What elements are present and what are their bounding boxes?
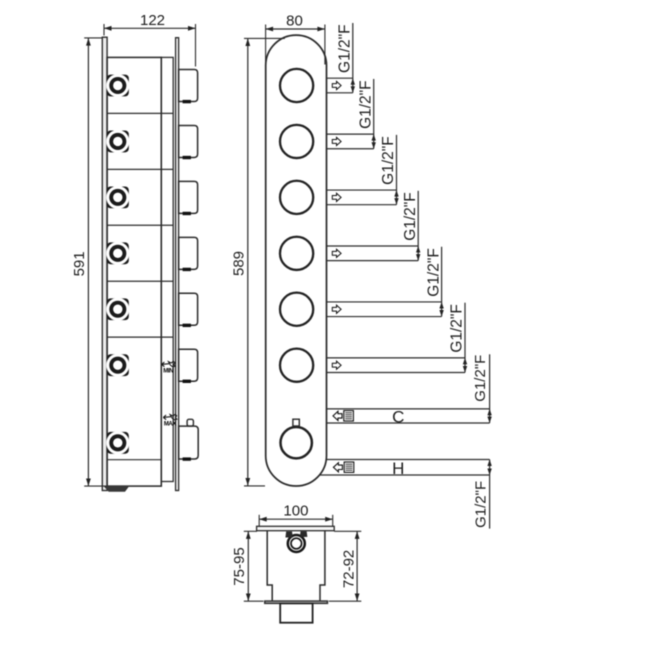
svg-text:G1/2"F: G1/2"F: [402, 192, 419, 241]
svg-text:C: C: [392, 407, 404, 426]
svg-text:122: 122: [140, 12, 165, 29]
svg-text:100: 100: [283, 502, 308, 519]
svg-text:MIN: MIN: [163, 368, 173, 374]
svg-text:MAX: MAX: [164, 421, 177, 427]
svg-text:H: H: [392, 459, 404, 478]
svg-text:80: 80: [286, 13, 303, 30]
svg-text:G1/2"F: G1/2"F: [472, 355, 489, 402]
svg-text:G1/2"F: G1/2"F: [357, 80, 374, 129]
svg-text:591: 591: [71, 251, 88, 276]
svg-text:G1/2"F: G1/2"F: [337, 24, 354, 73]
svg-text:75-95: 75-95: [231, 547, 248, 585]
svg-text:G1/2"F: G1/2"F: [473, 481, 490, 528]
svg-text:72-92: 72-92: [341, 550, 358, 588]
svg-text:G1/2"F: G1/2"F: [425, 248, 442, 297]
svg-text:G1/2"F: G1/2"F: [380, 136, 397, 185]
svg-text:G1/2"F: G1/2"F: [449, 304, 466, 353]
svg-text:589: 589: [231, 251, 248, 276]
